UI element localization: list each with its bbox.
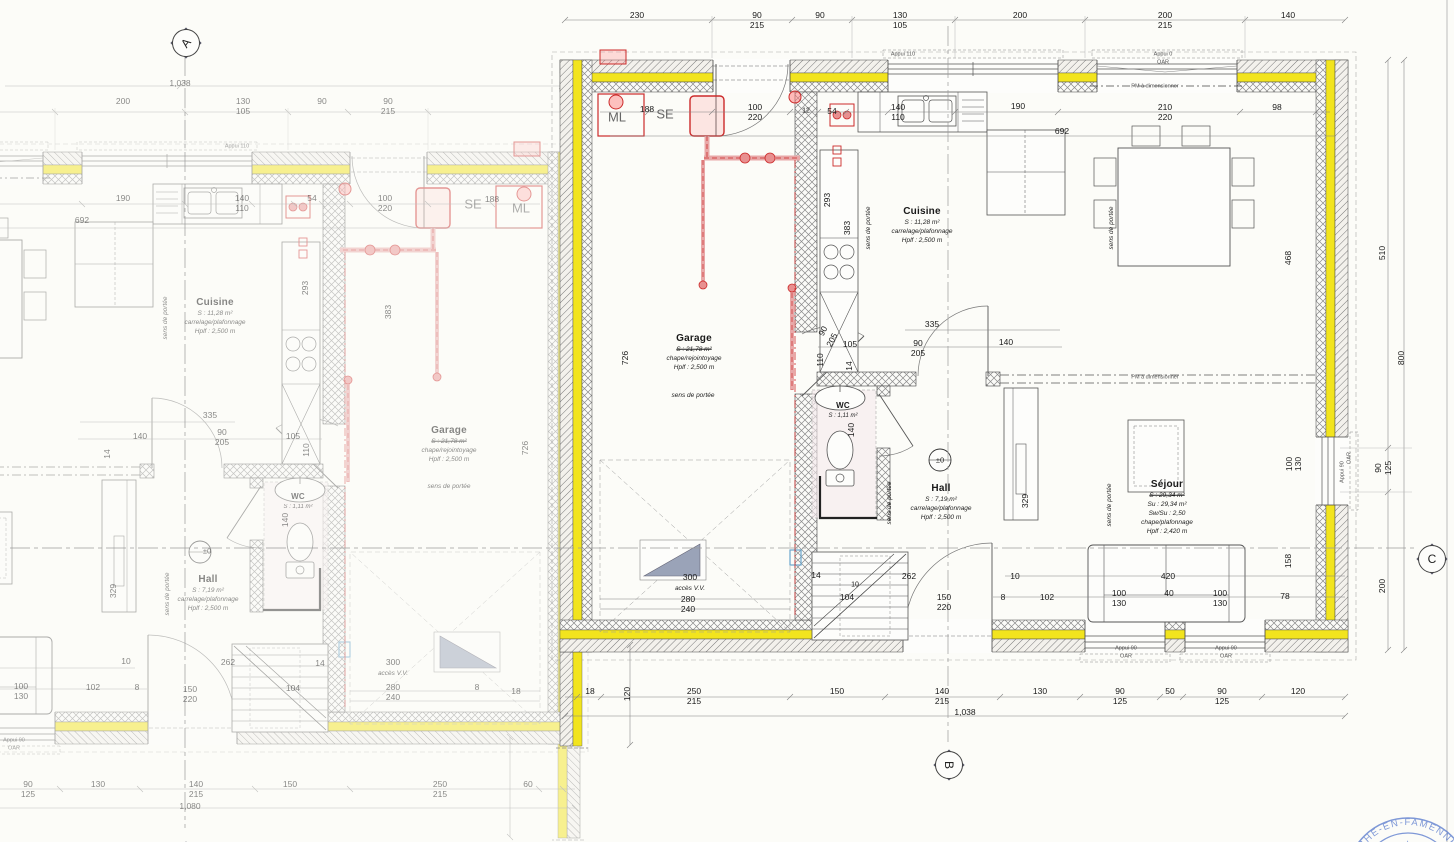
floor-plan-drawing: MARCHE-EN-FAMENNE ★ bbox=[0, 0, 1454, 842]
svg-text:MARCHE-EN-FAMENNE: MARCHE-EN-FAMENNE bbox=[1345, 817, 1454, 842]
left-plan-faded bbox=[0, 83, 588, 840]
marker-letter-c: C bbox=[1418, 545, 1446, 573]
right-plan bbox=[552, 16, 1412, 748]
floor-plan-page: MARCHE-EN-FAMENNE ★ 1,038200130105909021… bbox=[0, 0, 1454, 842]
approval-stamp: MARCHE-EN-FAMENNE ★ bbox=[1345, 817, 1454, 842]
stamp-text: MARCHE-EN-FAMENNE bbox=[1345, 817, 1454, 842]
marker-letter-b: B bbox=[935, 751, 963, 779]
